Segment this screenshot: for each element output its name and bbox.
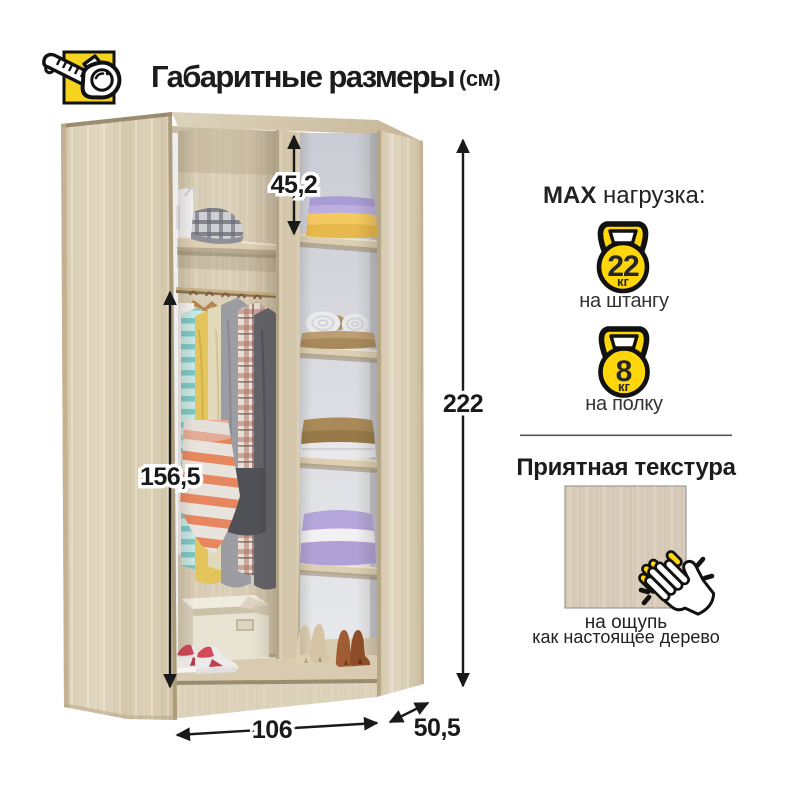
svg-text:45,2: 45,2 <box>271 171 318 199</box>
svg-text:Приятная текстура: Приятная текстура <box>516 454 736 481</box>
svg-text:50,5: 50,5 <box>414 714 461 742</box>
svg-text:156,5: 156,5 <box>140 463 201 491</box>
svg-text:Габаритные размеры: Габаритные размеры <box>151 59 454 94</box>
svg-text:MAX нагрузка:: MAX нагрузка: <box>543 182 706 209</box>
svg-text:на полку: на полку <box>585 393 663 415</box>
svg-text:кг: кг <box>617 274 630 289</box>
svg-text:кг: кг <box>618 379 631 394</box>
svg-text:на штангу: на штангу <box>579 290 669 312</box>
svg-text:106: 106 <box>252 716 292 744</box>
svg-text:как настоящее дерево: как настоящее дерево <box>532 627 719 647</box>
svg-text:(см): (см) <box>459 66 500 91</box>
svg-text:222: 222 <box>443 390 483 418</box>
